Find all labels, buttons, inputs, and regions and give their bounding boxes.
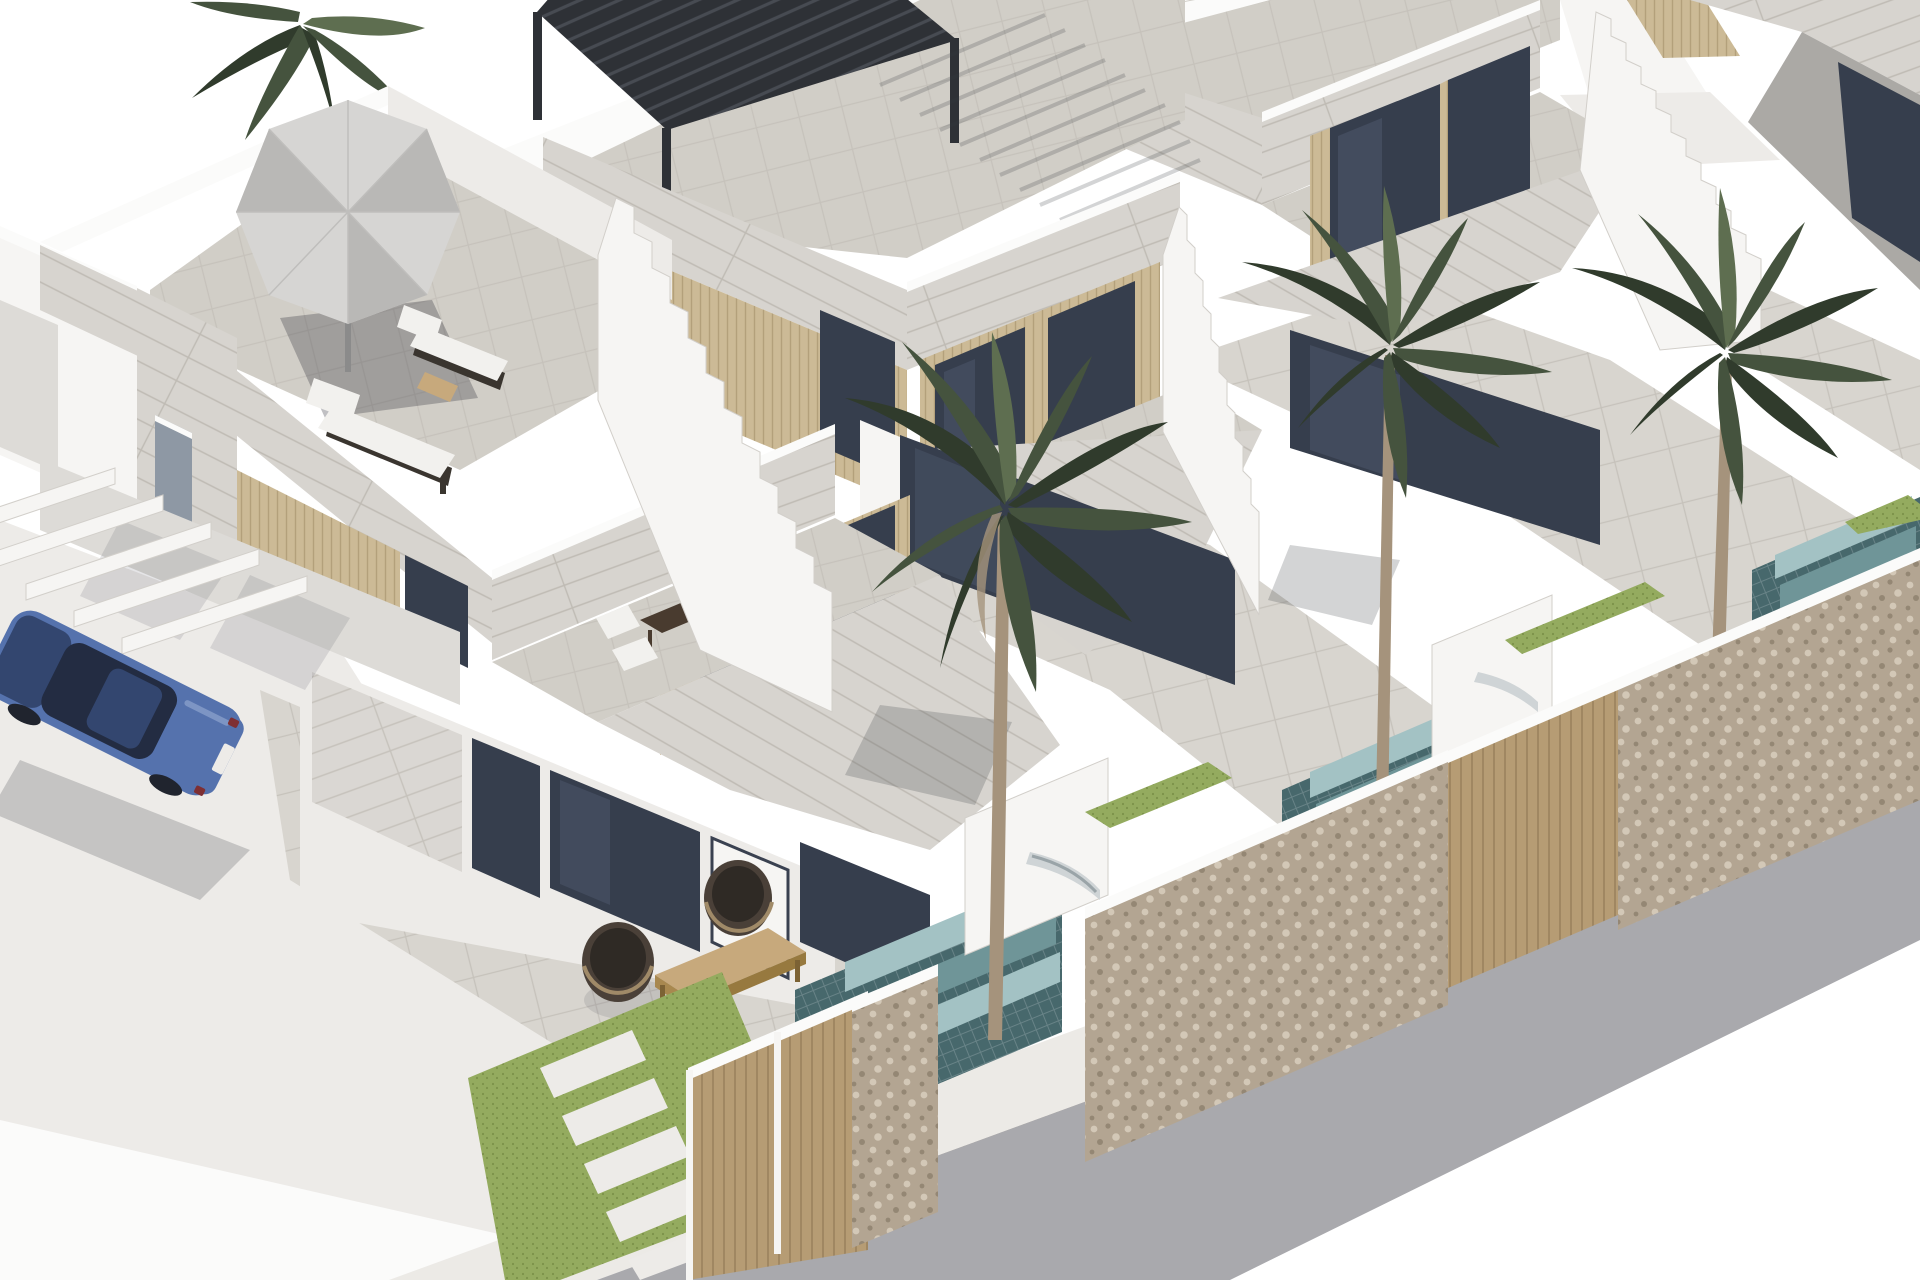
wicker-chair bbox=[704, 860, 772, 936]
stone-wall-pillar bbox=[852, 964, 938, 1248]
wicker-chair bbox=[582, 922, 654, 1002]
render-canvas bbox=[0, 0, 1920, 1280]
